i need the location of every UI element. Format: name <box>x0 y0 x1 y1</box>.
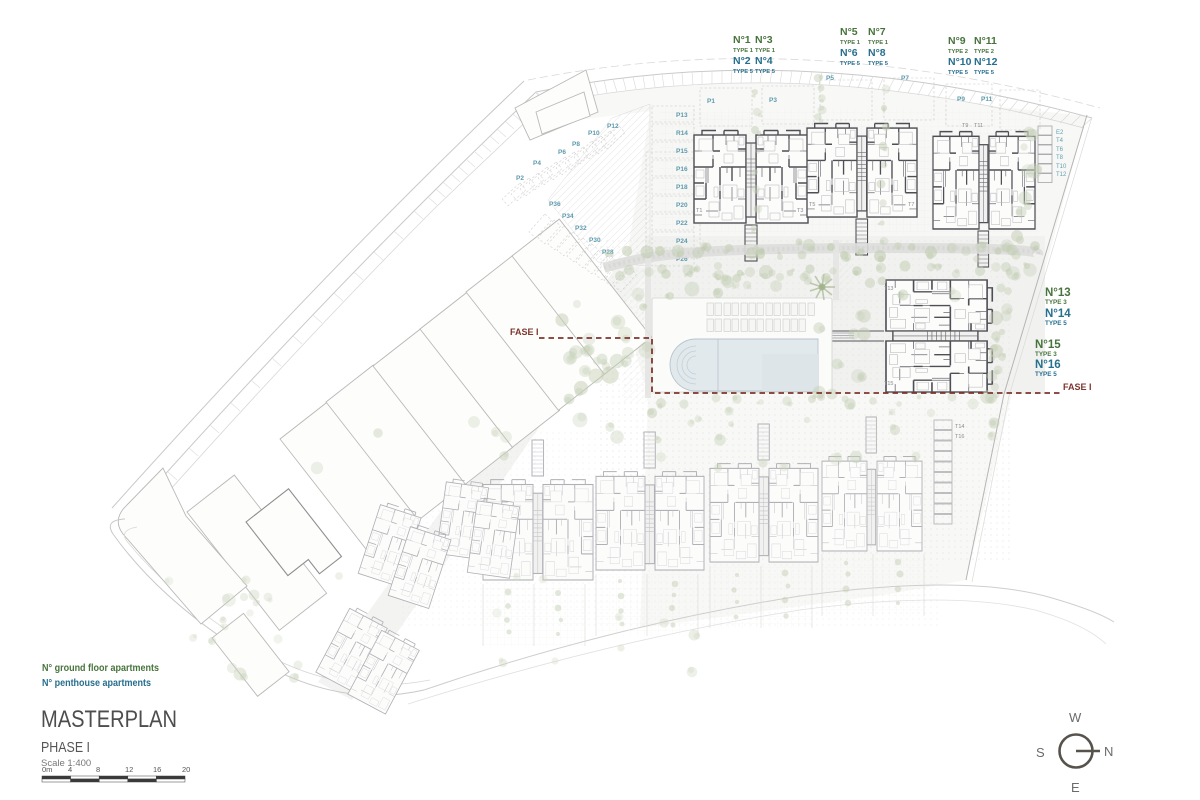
svg-text:N° penthouse apartments: N° penthouse apartments <box>42 677 151 689</box>
svg-text:N°6: N°6 <box>840 47 858 59</box>
svg-text:P20: P20 <box>676 202 688 209</box>
svg-text:8: 8 <box>96 765 100 774</box>
svg-text:N°10: N°10 <box>948 56 972 68</box>
svg-text:P3: P3 <box>769 97 777 104</box>
svg-text:TYPE 5: TYPE 5 <box>1035 371 1057 378</box>
svg-text:W: W <box>1069 710 1082 725</box>
svg-text:TYPE 5: TYPE 5 <box>868 61 889 67</box>
svg-text:N°14: N°14 <box>1045 308 1071 320</box>
svg-text:T11: T11 <box>974 123 983 129</box>
svg-text:N°9: N°9 <box>948 35 966 47</box>
svg-text:TYPE 5: TYPE 5 <box>1045 320 1067 327</box>
svg-text:P10: P10 <box>588 130 600 137</box>
svg-text:MASTERPLAN: MASTERPLAN <box>41 706 177 733</box>
svg-text:FASE I: FASE I <box>510 327 539 337</box>
svg-text:T4: T4 <box>1056 138 1064 144</box>
svg-text:TYPE 5: TYPE 5 <box>755 69 776 75</box>
svg-text:N°4: N°4 <box>755 55 773 67</box>
svg-text:N°1: N°1 <box>733 34 751 46</box>
svg-text:T13: T13 <box>884 286 893 292</box>
svg-text:P32: P32 <box>575 225 587 232</box>
svg-text:TYPE 5: TYPE 5 <box>840 61 861 67</box>
svg-text:P9: P9 <box>957 96 965 103</box>
svg-text:P30: P30 <box>589 237 601 244</box>
svg-text:16: 16 <box>153 765 161 774</box>
svg-text:N°13: N°13 <box>1045 287 1071 299</box>
svg-text:P1: P1 <box>707 98 715 105</box>
svg-text:N°2: N°2 <box>733 55 751 67</box>
svg-text:TYPE 5: TYPE 5 <box>733 69 754 75</box>
svg-text:P7: P7 <box>901 75 909 82</box>
svg-text:20: 20 <box>182 765 190 774</box>
svg-text:N°5: N°5 <box>840 26 858 38</box>
svg-text:TYPE 5: TYPE 5 <box>948 70 969 76</box>
svg-text:P22: P22 <box>676 220 688 227</box>
svg-text:T15: T15 <box>884 381 893 387</box>
svg-text:P6: P6 <box>558 149 566 156</box>
svg-text:12: 12 <box>125 765 133 774</box>
svg-text:TYPE 3: TYPE 3 <box>1045 299 1067 306</box>
svg-text:T14: T14 <box>955 424 964 430</box>
svg-text:P34: P34 <box>562 213 574 220</box>
svg-text:P4: P4 <box>533 160 541 167</box>
svg-text:P15: P15 <box>676 148 688 155</box>
svg-text:E2: E2 <box>1056 130 1064 136</box>
svg-text:TYPE 1: TYPE 1 <box>733 48 754 54</box>
svg-text:E: E <box>1071 780 1080 795</box>
svg-text:N° ground floor apartments: N° ground floor apartments <box>42 662 159 674</box>
svg-text:N°11: N°11 <box>974 35 997 47</box>
svg-text:N°3: N°3 <box>755 34 773 46</box>
svg-text:P16: P16 <box>676 166 688 173</box>
svg-text:T9: T9 <box>962 123 968 129</box>
svg-text:N°12: N°12 <box>974 56 998 68</box>
svg-text:P12: P12 <box>607 123 619 130</box>
svg-text:T7: T7 <box>908 202 914 208</box>
svg-text:T3: T3 <box>797 208 803 214</box>
svg-text:4: 4 <box>68 765 72 774</box>
svg-text:T1: T1 <box>696 208 702 214</box>
svg-text:P13: P13 <box>676 112 688 119</box>
svg-text:TYPE 1: TYPE 1 <box>868 40 889 46</box>
svg-text:PHASE I: PHASE I <box>41 739 90 756</box>
svg-text:N°16: N°16 <box>1035 359 1061 371</box>
svg-text:TYPE 3: TYPE 3 <box>1035 351 1057 358</box>
svg-text:P5: P5 <box>826 75 834 82</box>
svg-text:P11: P11 <box>981 96 993 103</box>
svg-text:TYPE 5: TYPE 5 <box>974 70 995 76</box>
svg-text:T12: T12 <box>1056 172 1067 178</box>
svg-text:TYPE 1: TYPE 1 <box>840 40 861 46</box>
svg-text:N°8: N°8 <box>868 47 886 59</box>
svg-text:N: N <box>1104 744 1113 759</box>
svg-text:N°15: N°15 <box>1035 339 1061 351</box>
svg-text:P36: P36 <box>549 201 561 208</box>
svg-text:P2: P2 <box>516 175 524 182</box>
svg-text:P24: P24 <box>676 238 688 245</box>
svg-text:TYPE 2: TYPE 2 <box>974 49 994 55</box>
svg-text:T16: T16 <box>955 434 964 440</box>
svg-text:FASE I: FASE I <box>1063 382 1092 392</box>
svg-text:R14: R14 <box>676 130 688 137</box>
svg-text:P8: P8 <box>572 141 580 148</box>
svg-text:TYPE 1: TYPE 1 <box>755 48 776 54</box>
svg-text:S: S <box>1036 745 1045 760</box>
svg-text:T8: T8 <box>1056 155 1064 161</box>
svg-text:N°7: N°7 <box>868 26 886 38</box>
svg-text:0m: 0m <box>42 765 52 774</box>
svg-text:T10: T10 <box>1056 164 1067 170</box>
svg-text:TYPE 2: TYPE 2 <box>948 49 968 55</box>
svg-text:T5: T5 <box>809 202 815 208</box>
svg-text:T6: T6 <box>1056 147 1064 153</box>
svg-text:P18: P18 <box>676 184 688 191</box>
